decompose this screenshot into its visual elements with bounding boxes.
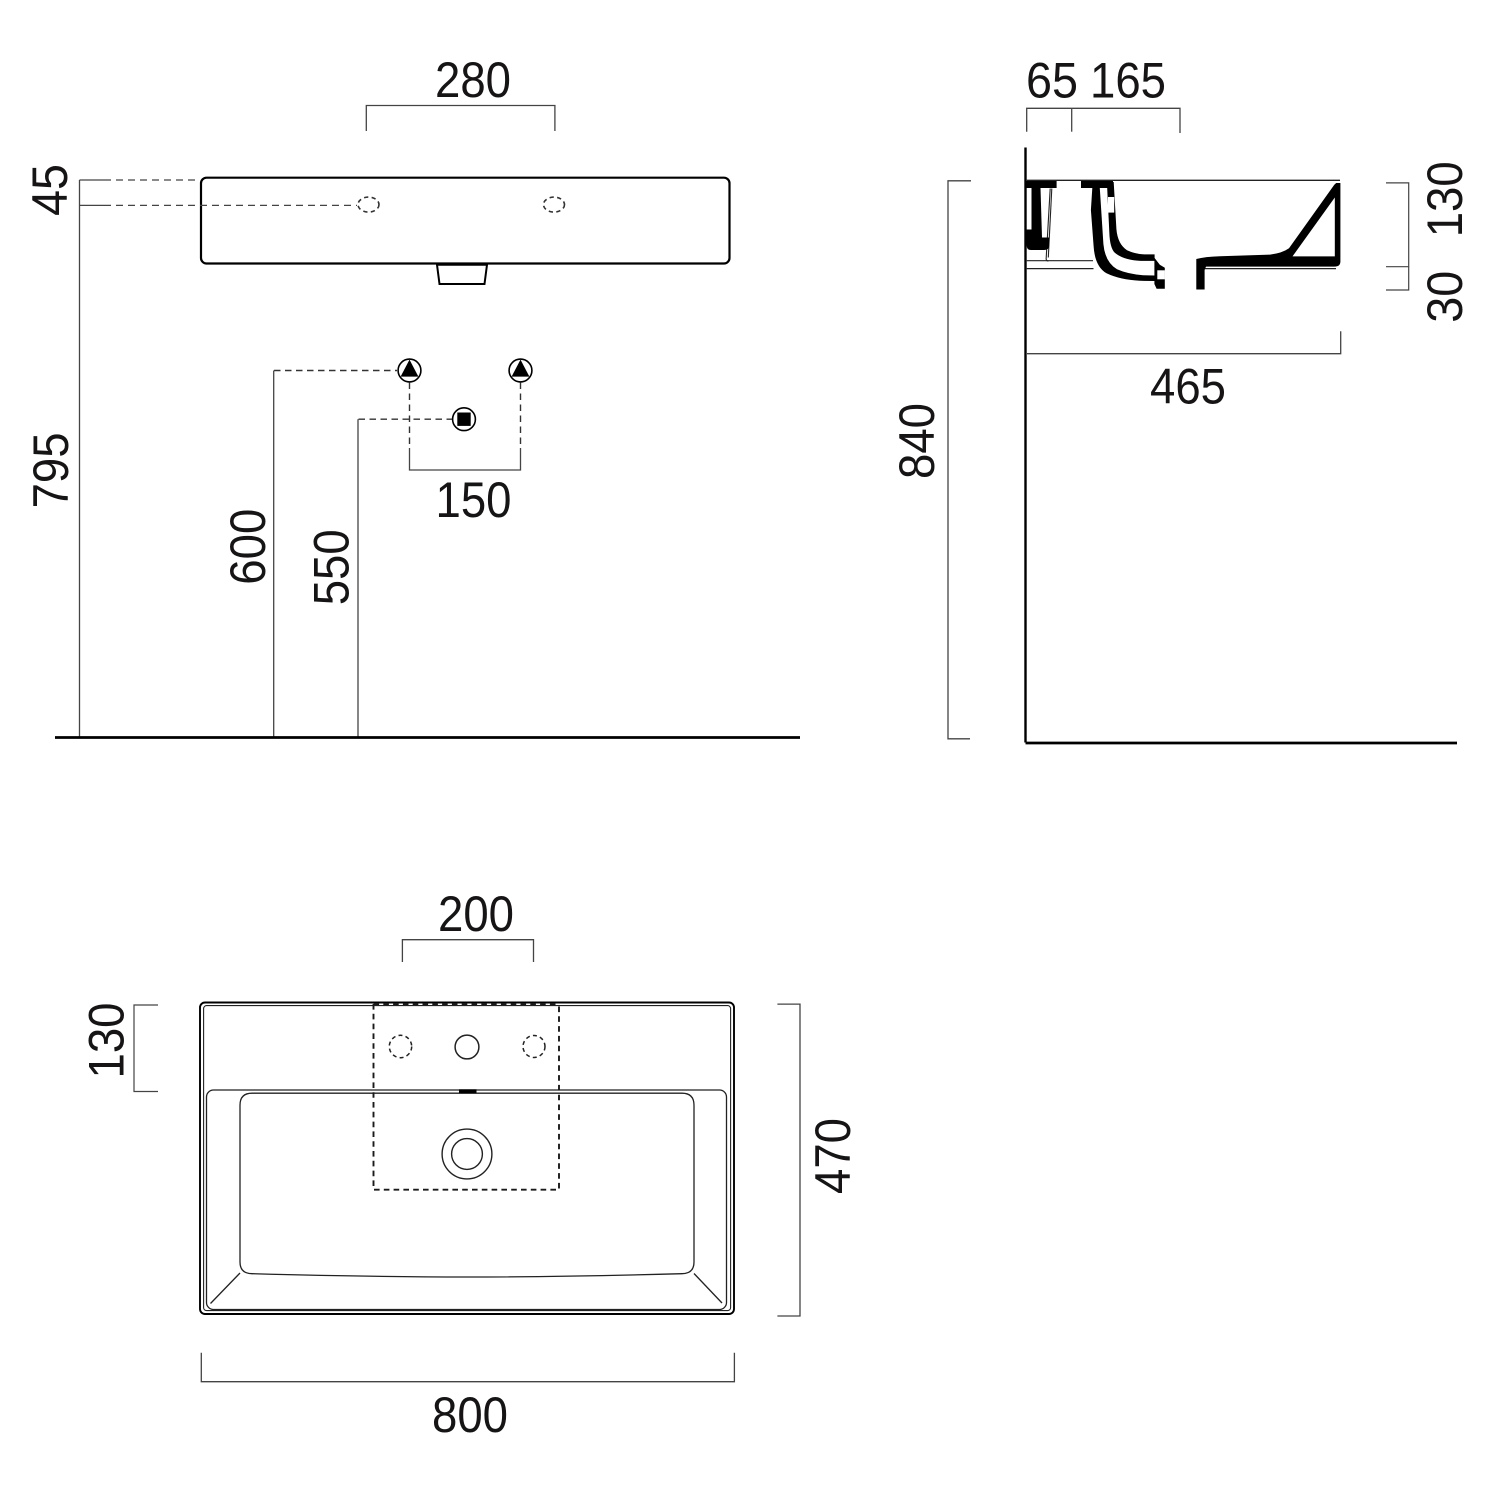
svg-text:45: 45 <box>22 164 78 216</box>
svg-text:200: 200 <box>438 886 514 942</box>
svg-text:800: 800 <box>432 1387 508 1443</box>
svg-text:30: 30 <box>1417 271 1473 323</box>
svg-text:470: 470 <box>805 1118 861 1194</box>
svg-text:130: 130 <box>79 1003 135 1079</box>
svg-text:130: 130 <box>1417 161 1473 237</box>
svg-text:550: 550 <box>304 529 360 605</box>
svg-text:600: 600 <box>220 509 276 585</box>
svg-text:465: 465 <box>1150 359 1226 415</box>
svg-text:150: 150 <box>436 472 512 528</box>
svg-text:795: 795 <box>23 432 79 508</box>
svg-text:280: 280 <box>435 52 511 108</box>
svg-text:165: 165 <box>1090 53 1166 109</box>
svg-text:840: 840 <box>889 403 945 479</box>
svg-text:65: 65 <box>1026 53 1078 109</box>
